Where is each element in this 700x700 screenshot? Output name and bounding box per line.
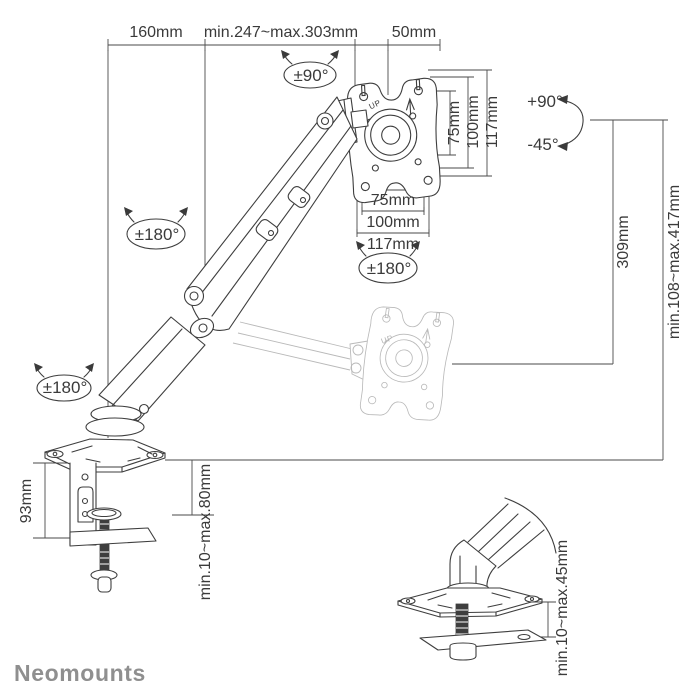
- base-tab-left: [47, 451, 63, 458]
- label-base-swivel: ±180°: [43, 378, 88, 397]
- label-height-range: min.108~max.417mm: [666, 185, 683, 339]
- label-grommet-range: min.10~max.45mm: [554, 540, 571, 677]
- tilt-bracket-step: [351, 110, 368, 128]
- label-vesa-v-75: 75mm: [446, 101, 463, 145]
- label-vesa-v-100: 100mm: [465, 95, 482, 148]
- monitor-arm-dimension-drawing: UP UP: [0, 0, 700, 700]
- label-reach: min.247~max.303mm: [204, 24, 358, 41]
- brand-logo: Neomounts: [14, 660, 146, 686]
- label-clamp-range: min.10~max.80mm: [197, 464, 214, 601]
- elbow-swivel-arrow-lines: [126, 210, 186, 222]
- ghost-vesa-plate: [357, 303, 455, 425]
- label-plate-rotation: ±180°: [367, 259, 412, 278]
- column-ring-lower: [86, 418, 144, 436]
- label-vesa-h-75: 75mm: [371, 192, 415, 209]
- grommet-tab-right: [525, 596, 539, 602]
- ghost-arm-lowered-position: UP: [233, 303, 455, 425]
- label-clamp-height: 93mm: [18, 479, 35, 523]
- head-swivel-arrowheads: [281, 50, 339, 59]
- grommet-rod: [456, 604, 468, 638]
- label-vesa-v-117: 117mm: [484, 96, 501, 148]
- label-tilt-up: +90°: [527, 92, 563, 111]
- label-head-swivel: ±90°: [293, 66, 328, 85]
- label-50mm: 50mm: [392, 24, 436, 41]
- label-elbow-swivel: ±180°: [135, 225, 180, 244]
- grommet-cut-curve: [505, 498, 556, 553]
- ghost-arm-edges: [233, 322, 352, 370]
- label-tilt-down: -45°: [527, 135, 558, 154]
- label-160mm: 160mm: [129, 24, 182, 41]
- grommet-nut: [450, 643, 476, 660]
- upper-arm-body: [187, 97, 357, 330]
- grommet-lower-bar: [420, 630, 546, 650]
- label-vesa-h-117: 117mm: [367, 236, 419, 253]
- elbow-screw: [185, 287, 204, 306]
- lower-link-body: [99, 317, 205, 421]
- clamp-handle-knob: [98, 577, 111, 592]
- arm-end-screw: [317, 113, 333, 129]
- tilt-arc: [560, 100, 583, 146]
- elbow-swivel-arrowheads: [124, 207, 188, 216]
- label-vesa-h-100: 100mm: [366, 214, 419, 231]
- base-swivel-arrowheads: [34, 363, 94, 372]
- main-vesa-plate: [346, 78, 443, 204]
- label-pivot-height: 309mm: [615, 215, 632, 268]
- column-knob: [140, 405, 149, 414]
- grommet-mount-drawing: [398, 498, 556, 660]
- clamp-93-line: [33, 463, 72, 538]
- technical-diagram-page: UP UP: [0, 0, 700, 700]
- grommet-tab-left: [401, 598, 415, 604]
